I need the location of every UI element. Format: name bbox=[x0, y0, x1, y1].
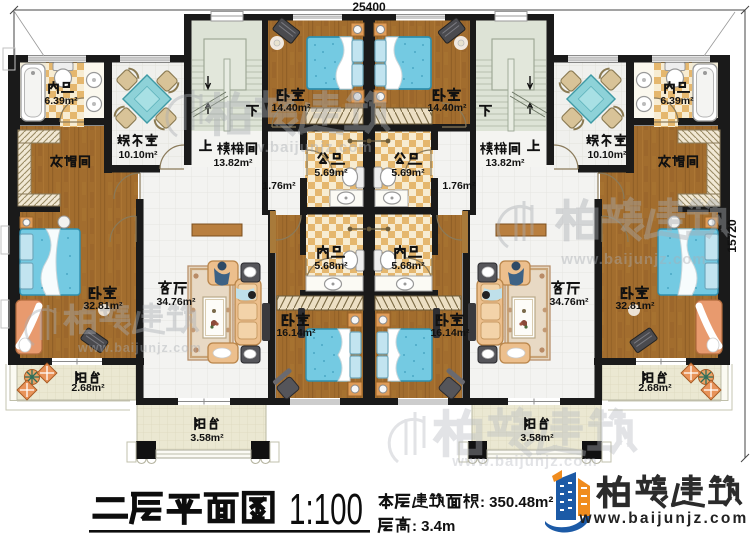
svg-text:3.58m²: 3.58m² bbox=[520, 432, 554, 444]
svg-text:5.68m²: 5.68m² bbox=[391, 260, 425, 272]
svg-text:5.68m²: 5.68m² bbox=[314, 260, 348, 272]
svg-text:13.82m²: 13.82m² bbox=[485, 157, 525, 169]
svg-text:: 350.48m²: : 350.48m² bbox=[480, 494, 553, 511]
svg-text:25400: 25400 bbox=[352, 0, 386, 14]
svg-text:: 3.4m: : 3.4m bbox=[412, 518, 455, 535]
svg-text:15720: 15720 bbox=[725, 219, 739, 253]
svg-text:2.68m²: 2.68m² bbox=[71, 382, 105, 394]
svg-text:13.82m²: 13.82m² bbox=[213, 157, 253, 169]
svg-text:32.81m²: 32.81m² bbox=[83, 300, 123, 312]
svg-text:10.10m²: 10.10m² bbox=[587, 149, 627, 161]
svg-text:www.baijunjz.com: www.baijunjz.com bbox=[226, 139, 372, 156]
svg-text:16.14m²: 16.14m² bbox=[276, 327, 316, 339]
svg-text:www.baijunjz.com: www.baijunjz.com bbox=[579, 510, 749, 527]
svg-text:5.69m²: 5.69m² bbox=[391, 167, 425, 179]
svg-text:16.14m²: 16.14m² bbox=[430, 327, 470, 339]
svg-text:34.76m²: 34.76m² bbox=[156, 296, 196, 308]
svg-text:3.58m²: 3.58m² bbox=[190, 432, 224, 444]
svg-text:1:100: 1:100 bbox=[289, 485, 363, 534]
svg-text:5.69m²: 5.69m² bbox=[314, 167, 348, 179]
svg-text:1.76m²: 1.76m² bbox=[262, 180, 296, 192]
svg-text:32.81m²: 32.81m² bbox=[615, 300, 655, 312]
svg-text:14.40m²: 14.40m² bbox=[271, 102, 311, 114]
svg-text:34.76m²: 34.76m² bbox=[549, 296, 589, 308]
svg-text:6.39m²: 6.39m² bbox=[660, 95, 694, 107]
svg-text:www.baijunjz.com: www.baijunjz.com bbox=[451, 453, 597, 470]
svg-text:6.39m²: 6.39m² bbox=[44, 95, 78, 107]
svg-text:14.40m²: 14.40m² bbox=[427, 102, 467, 114]
svg-text:www.baijunjz.com: www.baijunjz.com bbox=[560, 251, 706, 268]
svg-text:www.baijunjz.com: www.baijunjz.com bbox=[77, 341, 202, 355]
svg-text:1.76m²: 1.76m² bbox=[442, 180, 476, 192]
svg-text:10.10m²: 10.10m² bbox=[118, 149, 158, 161]
svg-text:2.68m²: 2.68m² bbox=[638, 382, 672, 394]
